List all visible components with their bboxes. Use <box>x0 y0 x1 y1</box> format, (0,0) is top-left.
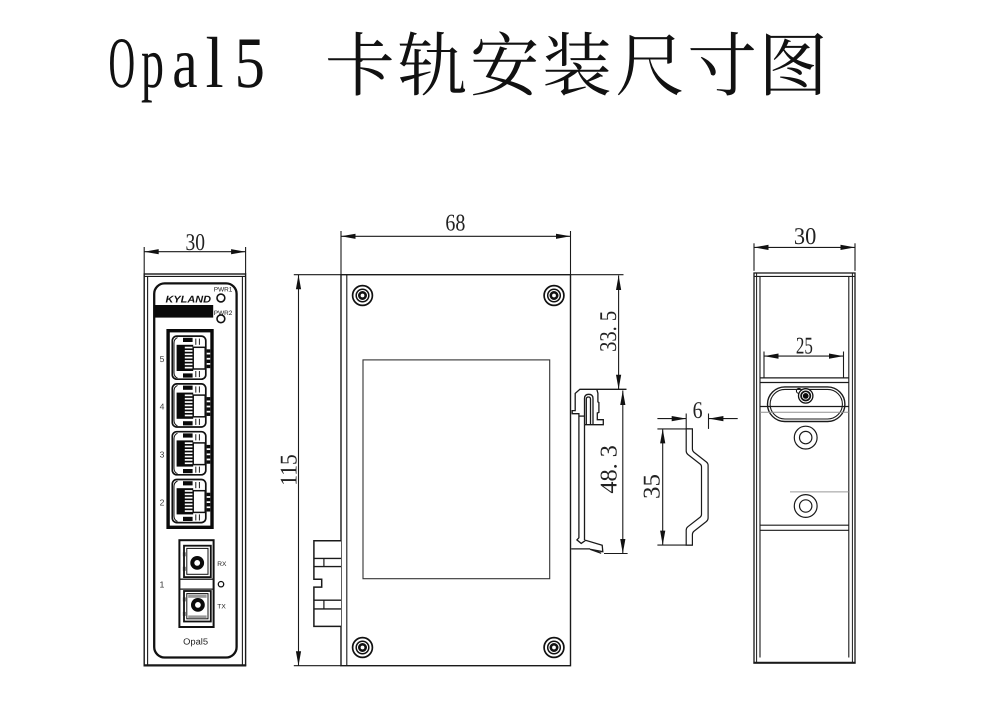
svg-text:30: 30 <box>185 230 205 256</box>
svg-text:1: 1 <box>160 579 165 589</box>
svg-text:35: 35 <box>640 474 666 499</box>
svg-text:3: 3 <box>160 450 165 460</box>
svg-text:O: O <box>109 22 136 103</box>
svg-text:RX: RX <box>217 561 227 568</box>
svg-text:Opal5: Opal5 <box>183 636 208 646</box>
svg-text:l: l <box>206 22 224 103</box>
svg-text:6: 6 <box>693 398 703 424</box>
svg-text:68: 68 <box>445 210 465 236</box>
svg-text:30: 30 <box>794 224 816 250</box>
svg-text:4: 4 <box>160 402 165 412</box>
svg-text:KYLAND: KYLAND <box>166 294 212 305</box>
svg-text:5: 5 <box>160 354 165 364</box>
svg-text:2: 2 <box>160 497 165 507</box>
svg-text:48. 3: 48. 3 <box>597 445 623 494</box>
svg-text:a: a <box>172 22 197 103</box>
svg-text:5: 5 <box>235 22 265 103</box>
svg-text:p: p <box>141 22 164 103</box>
svg-text:PWR1: PWR1 <box>214 286 233 293</box>
svg-text:TX: TX <box>217 604 226 611</box>
